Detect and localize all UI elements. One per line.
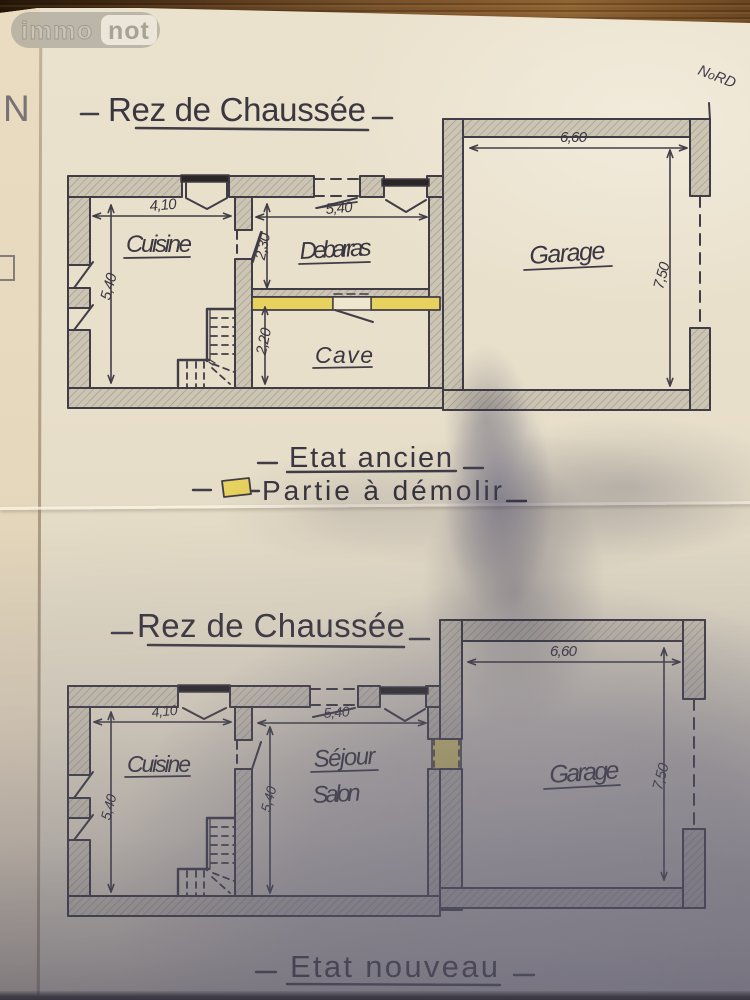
svg-text:immo: immo [21, 17, 94, 45]
